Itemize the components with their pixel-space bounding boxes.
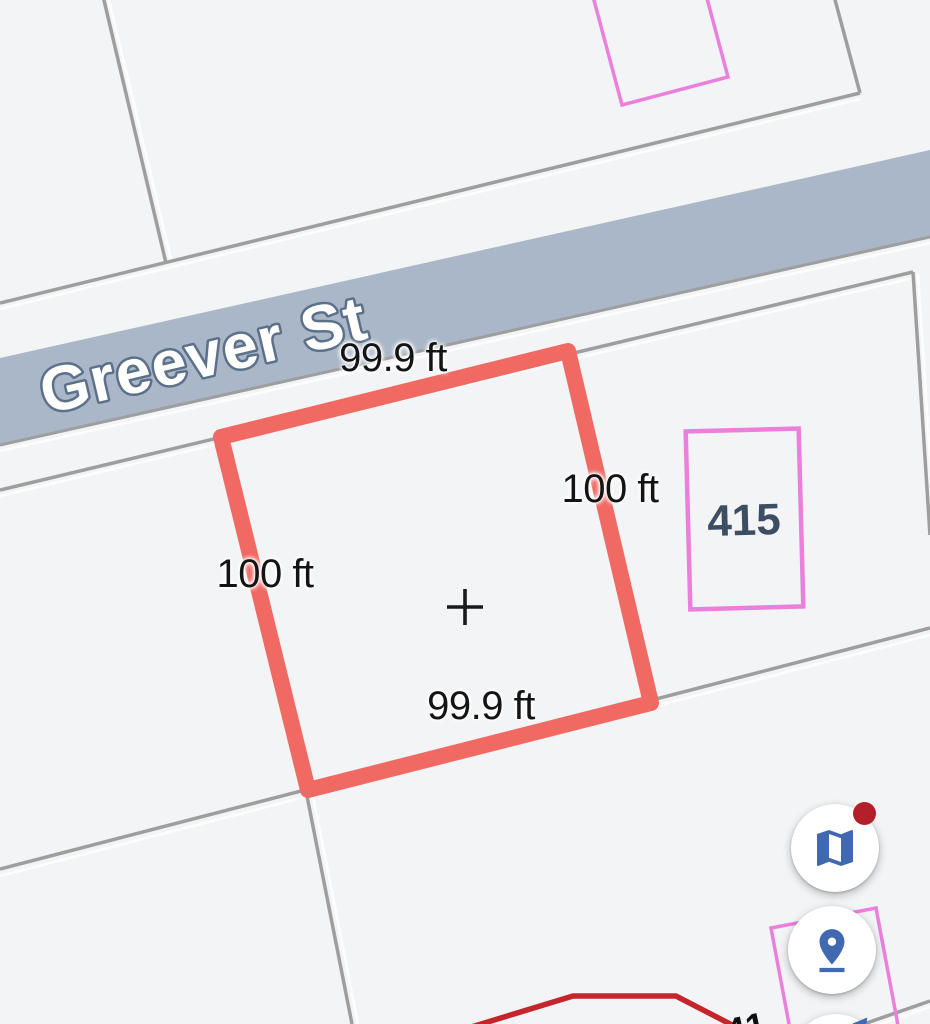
building-outline-top: [591, 0, 728, 105]
map-icon: [811, 824, 859, 872]
adjacent-parcel-outline: [468, 996, 736, 1024]
house-number-label: 415: [707, 495, 782, 546]
dimension-label-bottom: 99.9 ft: [427, 684, 535, 729]
my-location-button[interactable]: [788, 906, 876, 994]
dimension-label-left: 100 ft: [216, 552, 313, 597]
dimension-label-right: 100 ft: [561, 467, 658, 512]
dimension-label-top: 99.9 ft: [339, 336, 447, 381]
building-415: 415: [686, 429, 804, 610]
crosshair-icon: [447, 589, 483, 625]
parcel-line: [834, 0, 860, 93]
map-layer: Greever St 415: [0, 0, 930, 1024]
parcel-line: [103, 0, 166, 263]
map-layers-button[interactable]: [791, 804, 879, 892]
parcel-line-white: [108, 0, 172, 263]
pin-drop-icon: [807, 925, 857, 975]
parcel-line: [306, 791, 352, 1024]
parcel-boundaries: [0, 0, 930, 1024]
parcel-line-white: [312, 791, 358, 1024]
map-canvas[interactable]: Greever St 415 99.9 ft 100 ft 100 ft 99.…: [0, 0, 930, 1024]
notification-badge: [853, 802, 876, 825]
